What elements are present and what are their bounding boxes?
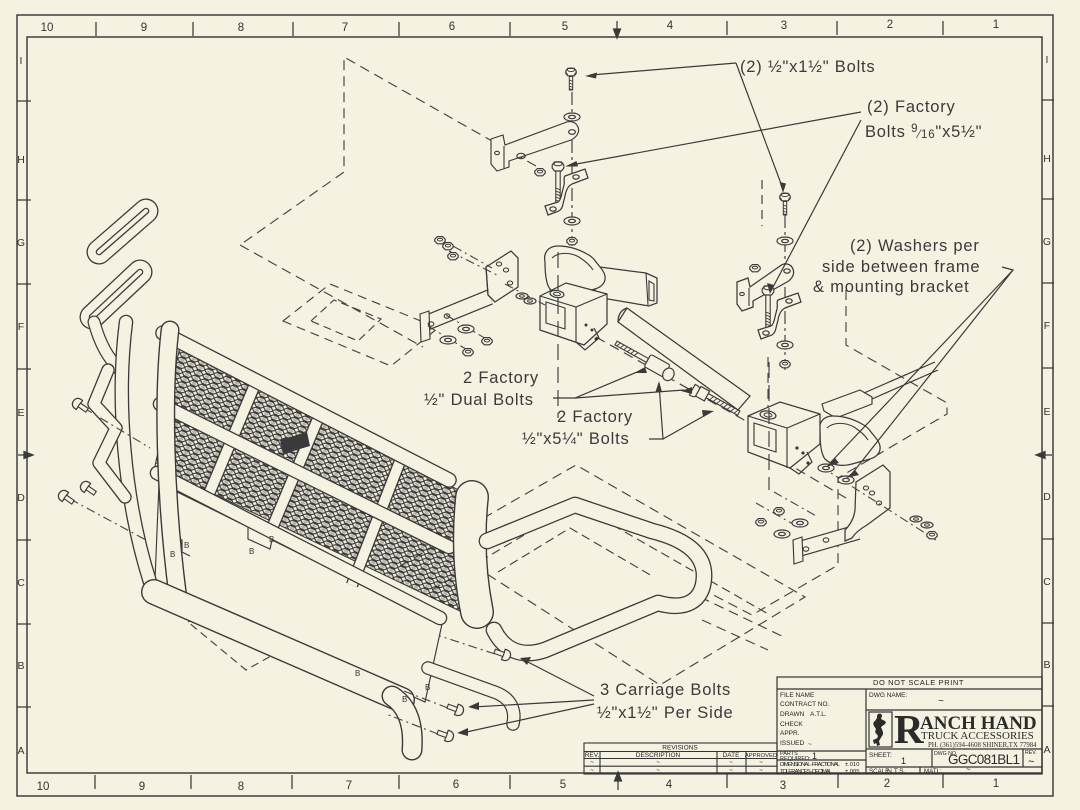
- svg-text:REV.: REV.: [585, 752, 600, 759]
- svg-text:SHEET:: SHEET:: [869, 752, 892, 759]
- svg-text:TRUCK ACCESSORIES: TRUCK ACCESSORIES: [921, 730, 1034, 742]
- svg-text:I: I: [20, 55, 23, 67]
- svg-text:PH. (361)594-4608 SHINER,TX 77: PH. (361)594-4608 SHINER,TX 77984: [928, 742, 1037, 749]
- svg-text:~: ~: [1028, 756, 1034, 768]
- svg-text:~: ~: [938, 696, 944, 707]
- svg-text:G: G: [17, 237, 25, 249]
- svg-text:½"x1½" Per Side: ½"x1½" Per Side: [597, 704, 734, 722]
- svg-text:8: 8: [238, 22, 244, 34]
- svg-text:8: 8: [238, 781, 244, 793]
- svg-text:side between frame: side between frame: [822, 258, 980, 276]
- svg-text:H: H: [1043, 153, 1051, 165]
- svg-text:E: E: [1043, 406, 1050, 418]
- svg-text:(2) Factory: (2) Factory: [867, 98, 956, 116]
- svg-text:~: ~: [759, 759, 763, 766]
- svg-text:F: F: [1044, 320, 1050, 332]
- svg-text:I: I: [1046, 54, 1049, 66]
- svg-text:B: B: [269, 535, 274, 544]
- svg-text:DO NOT SCALE PRINT: DO NOT SCALE PRINT: [873, 678, 964, 687]
- svg-text:7: 7: [342, 22, 348, 34]
- svg-text:B: B: [184, 541, 189, 550]
- svg-text:½"x5¼" Bolts: ½"x5¼" Bolts: [522, 430, 630, 448]
- svg-text:B: B: [425, 683, 430, 692]
- svg-text:(2) ½"x1½" Bolts: (2) ½"x1½" Bolts: [740, 58, 875, 76]
- svg-text:MATL:: MATL:: [924, 768, 942, 775]
- svg-text:CHECK: CHECK: [780, 721, 803, 728]
- svg-text:~: ~: [729, 759, 733, 766]
- svg-text:~: ~: [759, 767, 763, 774]
- svg-text:3: 3: [780, 780, 786, 792]
- svg-text:7: 7: [346, 780, 352, 792]
- svg-text:H: H: [17, 154, 25, 166]
- svg-text:2: 2: [887, 19, 893, 31]
- svg-text:3 Carriage Bolts: 3 Carriage Bolts: [600, 681, 731, 699]
- svg-text:~: ~: [808, 741, 812, 748]
- svg-text:9: 9: [139, 781, 145, 793]
- svg-text:B: B: [1043, 659, 1050, 671]
- svg-text:DATE: DATE: [723, 752, 741, 759]
- svg-text:9: 9: [141, 22, 147, 34]
- svg-text:A.T.L.: A.T.L.: [810, 711, 827, 718]
- svg-text:2 Factory: 2 Factory: [463, 369, 539, 387]
- svg-text:C: C: [1043, 576, 1051, 588]
- svg-text:±.005: ±.005: [845, 769, 859, 775]
- svg-text:DIMENSIONAL - FRACTIONAL: DIMENSIONAL - FRACTIONAL: [780, 762, 841, 768]
- svg-text:3: 3: [781, 20, 787, 32]
- svg-text:D: D: [17, 492, 25, 504]
- svg-text:B: B: [249, 547, 254, 556]
- svg-text:B: B: [402, 695, 407, 704]
- svg-text:APPR.: APPR.: [780, 730, 800, 737]
- svg-text:G: G: [1043, 236, 1051, 248]
- svg-text:½" Dual Bolts: ½" Dual Bolts: [424, 391, 534, 409]
- svg-text:2: 2: [884, 778, 890, 790]
- svg-text:REVISIONS: REVISIONS: [662, 745, 698, 752]
- svg-text:DWG NAME:: DWG NAME:: [869, 692, 907, 699]
- svg-text:DESCRIPTION: DESCRIPTION: [636, 752, 681, 759]
- svg-text:B: B: [17, 660, 24, 672]
- svg-text:& mounting bracket: & mounting bracket: [813, 278, 970, 296]
- svg-text:FILE NAME: FILE NAME: [780, 692, 815, 699]
- svg-text:DRAWN: DRAWN: [780, 711, 805, 718]
- svg-text:1: 1: [993, 778, 999, 790]
- svg-text:1: 1: [812, 751, 817, 761]
- svg-text:2 Factory: 2 Factory: [557, 408, 633, 426]
- svg-text:~: ~: [590, 767, 594, 774]
- svg-text:ISSUED: ISSUED: [780, 740, 805, 747]
- svg-text:GGC081BL1: GGC081BL1: [948, 752, 1020, 767]
- svg-text:(2) Washers per: (2) Washers per: [850, 237, 980, 255]
- svg-text:10: 10: [41, 22, 54, 34]
- svg-text:D: D: [1043, 491, 1051, 503]
- svg-text:5: 5: [560, 779, 566, 791]
- svg-text:5: 5: [562, 21, 568, 33]
- svg-text:A: A: [1043, 744, 1050, 756]
- svg-text:C: C: [17, 577, 25, 589]
- svg-text:TOLERANCES - DECIMAL: TOLERANCES - DECIMAL: [780, 769, 833, 775]
- svg-text:CONTRACT NO.: CONTRACT NO.: [780, 701, 830, 708]
- svg-text:A: A: [17, 745, 24, 757]
- svg-text:1: 1: [993, 19, 999, 31]
- svg-text:10: 10: [37, 781, 50, 793]
- svg-text:±.010: ±.010: [845, 762, 859, 768]
- svg-text:6: 6: [453, 779, 459, 791]
- svg-text:4: 4: [667, 20, 674, 32]
- svg-text:B: B: [355, 669, 360, 678]
- svg-text:B: B: [170, 550, 175, 559]
- svg-text:1: 1: [901, 756, 906, 766]
- svg-text:~: ~: [656, 759, 660, 766]
- svg-text:N.T.S.: N.T.S.: [887, 768, 906, 775]
- svg-text:~: ~: [656, 767, 660, 774]
- svg-text:F: F: [18, 321, 24, 333]
- svg-text:E: E: [17, 407, 24, 419]
- svg-text:4: 4: [666, 779, 673, 791]
- svg-text:~: ~: [729, 767, 733, 774]
- svg-text:~: ~: [590, 759, 594, 766]
- svg-text:6: 6: [449, 21, 455, 33]
